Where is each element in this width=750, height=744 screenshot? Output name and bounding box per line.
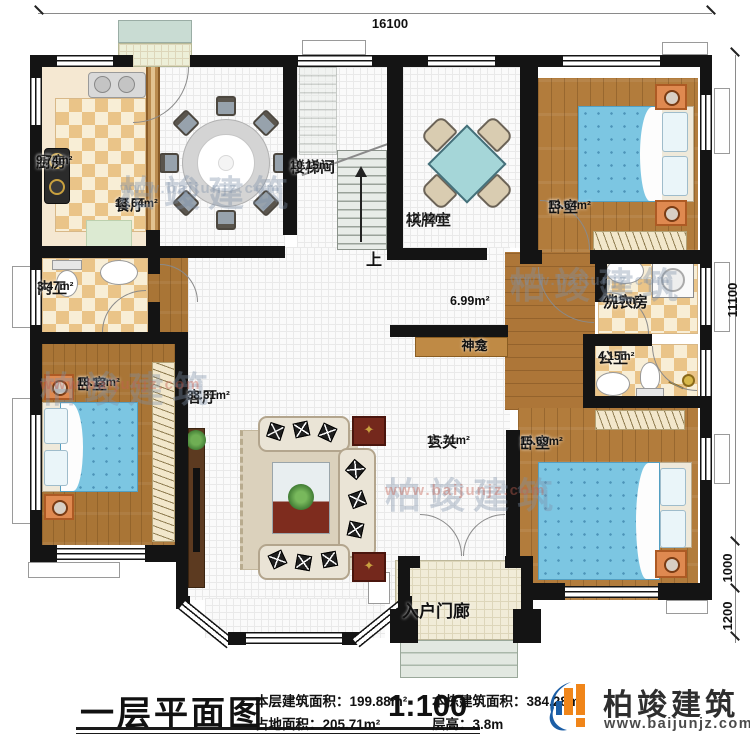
dining-chair [159, 153, 179, 173]
window-sill [28, 562, 120, 578]
wall [30, 545, 57, 562]
side-table: ✦ [352, 416, 386, 446]
sink-basin [94, 76, 111, 93]
wall [658, 583, 712, 600]
wall [30, 332, 175, 344]
wardrobe [593, 231, 687, 251]
window [57, 55, 113, 67]
dining-table-center [218, 155, 234, 171]
wall [175, 332, 188, 557]
nightstand [44, 494, 74, 520]
wall [520, 55, 538, 252]
washer-drum [661, 268, 685, 292]
wall [506, 430, 520, 556]
wall [390, 325, 508, 337]
bed-pillow [44, 450, 68, 486]
brand-url[interactable]: www.baijunjz.com [604, 716, 750, 732]
stat-label: 本层建筑面积： [255, 694, 350, 709]
wall [583, 396, 712, 408]
dimension-right-lower: 1200 [720, 581, 736, 651]
wardrobe [152, 362, 175, 542]
dining-chair [216, 210, 236, 230]
room-area: 38.31m² [187, 390, 230, 403]
window-sill [12, 266, 32, 328]
window [700, 438, 712, 480]
wall [387, 248, 487, 260]
stat-storey-height: 层高：3.8m [432, 713, 503, 734]
porch-steps [400, 640, 518, 678]
dimension-top-value: 16100 [340, 16, 440, 31]
wall [372, 55, 428, 67]
wall [700, 480, 712, 583]
window [428, 55, 495, 67]
stove-burner [49, 179, 65, 195]
wall [30, 55, 42, 78]
nightstand [44, 374, 74, 400]
wall [113, 55, 133, 67]
dimension-right-main: 11100 [725, 265, 741, 335]
bed-pillow [660, 468, 686, 506]
wall [520, 250, 542, 264]
bed-sheet-fold [640, 107, 662, 201]
wall [228, 632, 246, 645]
bathroom-sink [596, 372, 630, 396]
window [563, 55, 660, 67]
bed-pillow [660, 510, 686, 548]
window [57, 548, 145, 560]
stat-label: 占地面积： [255, 717, 323, 732]
sofa-pillow [295, 554, 312, 571]
stair-arrow-head [355, 160, 367, 177]
wall [148, 302, 160, 332]
window [30, 78, 42, 125]
room-area: 18.13m² [77, 377, 120, 390]
stat-value: 205.71m² [323, 717, 381, 732]
wall [190, 55, 298, 67]
stat-label: 本栋建筑面积： [432, 694, 527, 709]
plant [288, 484, 314, 510]
window [700, 268, 712, 325]
wall [533, 583, 565, 600]
floorplan-page: ✦ ✦ [0, 0, 750, 744]
toilet-tank [52, 260, 82, 270]
window-sill [714, 434, 730, 484]
wall [595, 334, 652, 346]
wall [158, 246, 285, 258]
room-area: 4.15m² [598, 351, 634, 364]
bay-window [246, 632, 342, 644]
wall [700, 55, 712, 95]
stat-value: 3.8m [473, 717, 504, 732]
plant [186, 430, 206, 450]
bed-pillow [662, 112, 688, 152]
wall [700, 325, 712, 350]
wall [30, 246, 160, 258]
window-sill [666, 600, 708, 614]
bed-pillow [662, 156, 688, 196]
room-name: 入户门廊 [402, 602, 470, 621]
room-name: 神龛 [462, 339, 488, 354]
stairs-up-text: 上 [366, 252, 382, 270]
wardrobe [595, 410, 685, 430]
wall [521, 556, 533, 609]
bed-pillow [44, 408, 68, 444]
wall [283, 67, 297, 235]
window [30, 415, 42, 510]
stat-value: 199.88m² [350, 694, 408, 709]
porch-post [513, 609, 541, 643]
room-area: 15.71m² [427, 435, 470, 448]
side-table: ✦ [352, 552, 386, 582]
entry-canopy [118, 20, 192, 43]
nightstand [655, 550, 687, 578]
wall [700, 150, 712, 268]
room-area: 13.64m² [115, 198, 158, 211]
room-area: 10.15m² [290, 160, 333, 173]
sofa-pillow [321, 551, 338, 568]
room-area: 4.15m² [603, 295, 639, 308]
window [298, 55, 372, 67]
stair-arrow-line [360, 170, 362, 242]
window [565, 586, 658, 598]
room-area: 3.47m² [37, 281, 73, 294]
dimension-line-top [38, 13, 712, 14]
brand-logo[interactable]: 柏竣建筑 www.baijunjz.com [543, 678, 743, 738]
sofa-pillow [347, 521, 365, 539]
room-area: 6.99m² [450, 294, 490, 308]
wall [148, 258, 160, 274]
wall [583, 334, 595, 398]
window [700, 95, 712, 150]
tv [193, 468, 200, 552]
bathroom-sink [100, 260, 138, 285]
sofa-pillow [293, 421, 311, 439]
window-sill [714, 88, 730, 154]
stat-label: 层高： [432, 717, 473, 732]
dining-chair [216, 96, 236, 116]
stat-floor-area: 本层建筑面积：199.88m² [255, 690, 407, 711]
window [700, 350, 712, 398]
room-area: 13.64m² [548, 200, 591, 213]
wall [387, 67, 403, 248]
stair-treads-upper [299, 67, 337, 155]
room-area: 15.69m² [520, 436, 563, 449]
window-sill [12, 398, 32, 524]
window-sill [302, 40, 366, 55]
stat-footprint-area: 占地面积：205.71m² [255, 713, 380, 734]
nightstand [655, 200, 687, 226]
room-area: 12.42m² [406, 213, 449, 226]
window-sill [662, 42, 708, 55]
nightstand [655, 84, 687, 110]
room-area: 9.74m² [36, 155, 72, 168]
